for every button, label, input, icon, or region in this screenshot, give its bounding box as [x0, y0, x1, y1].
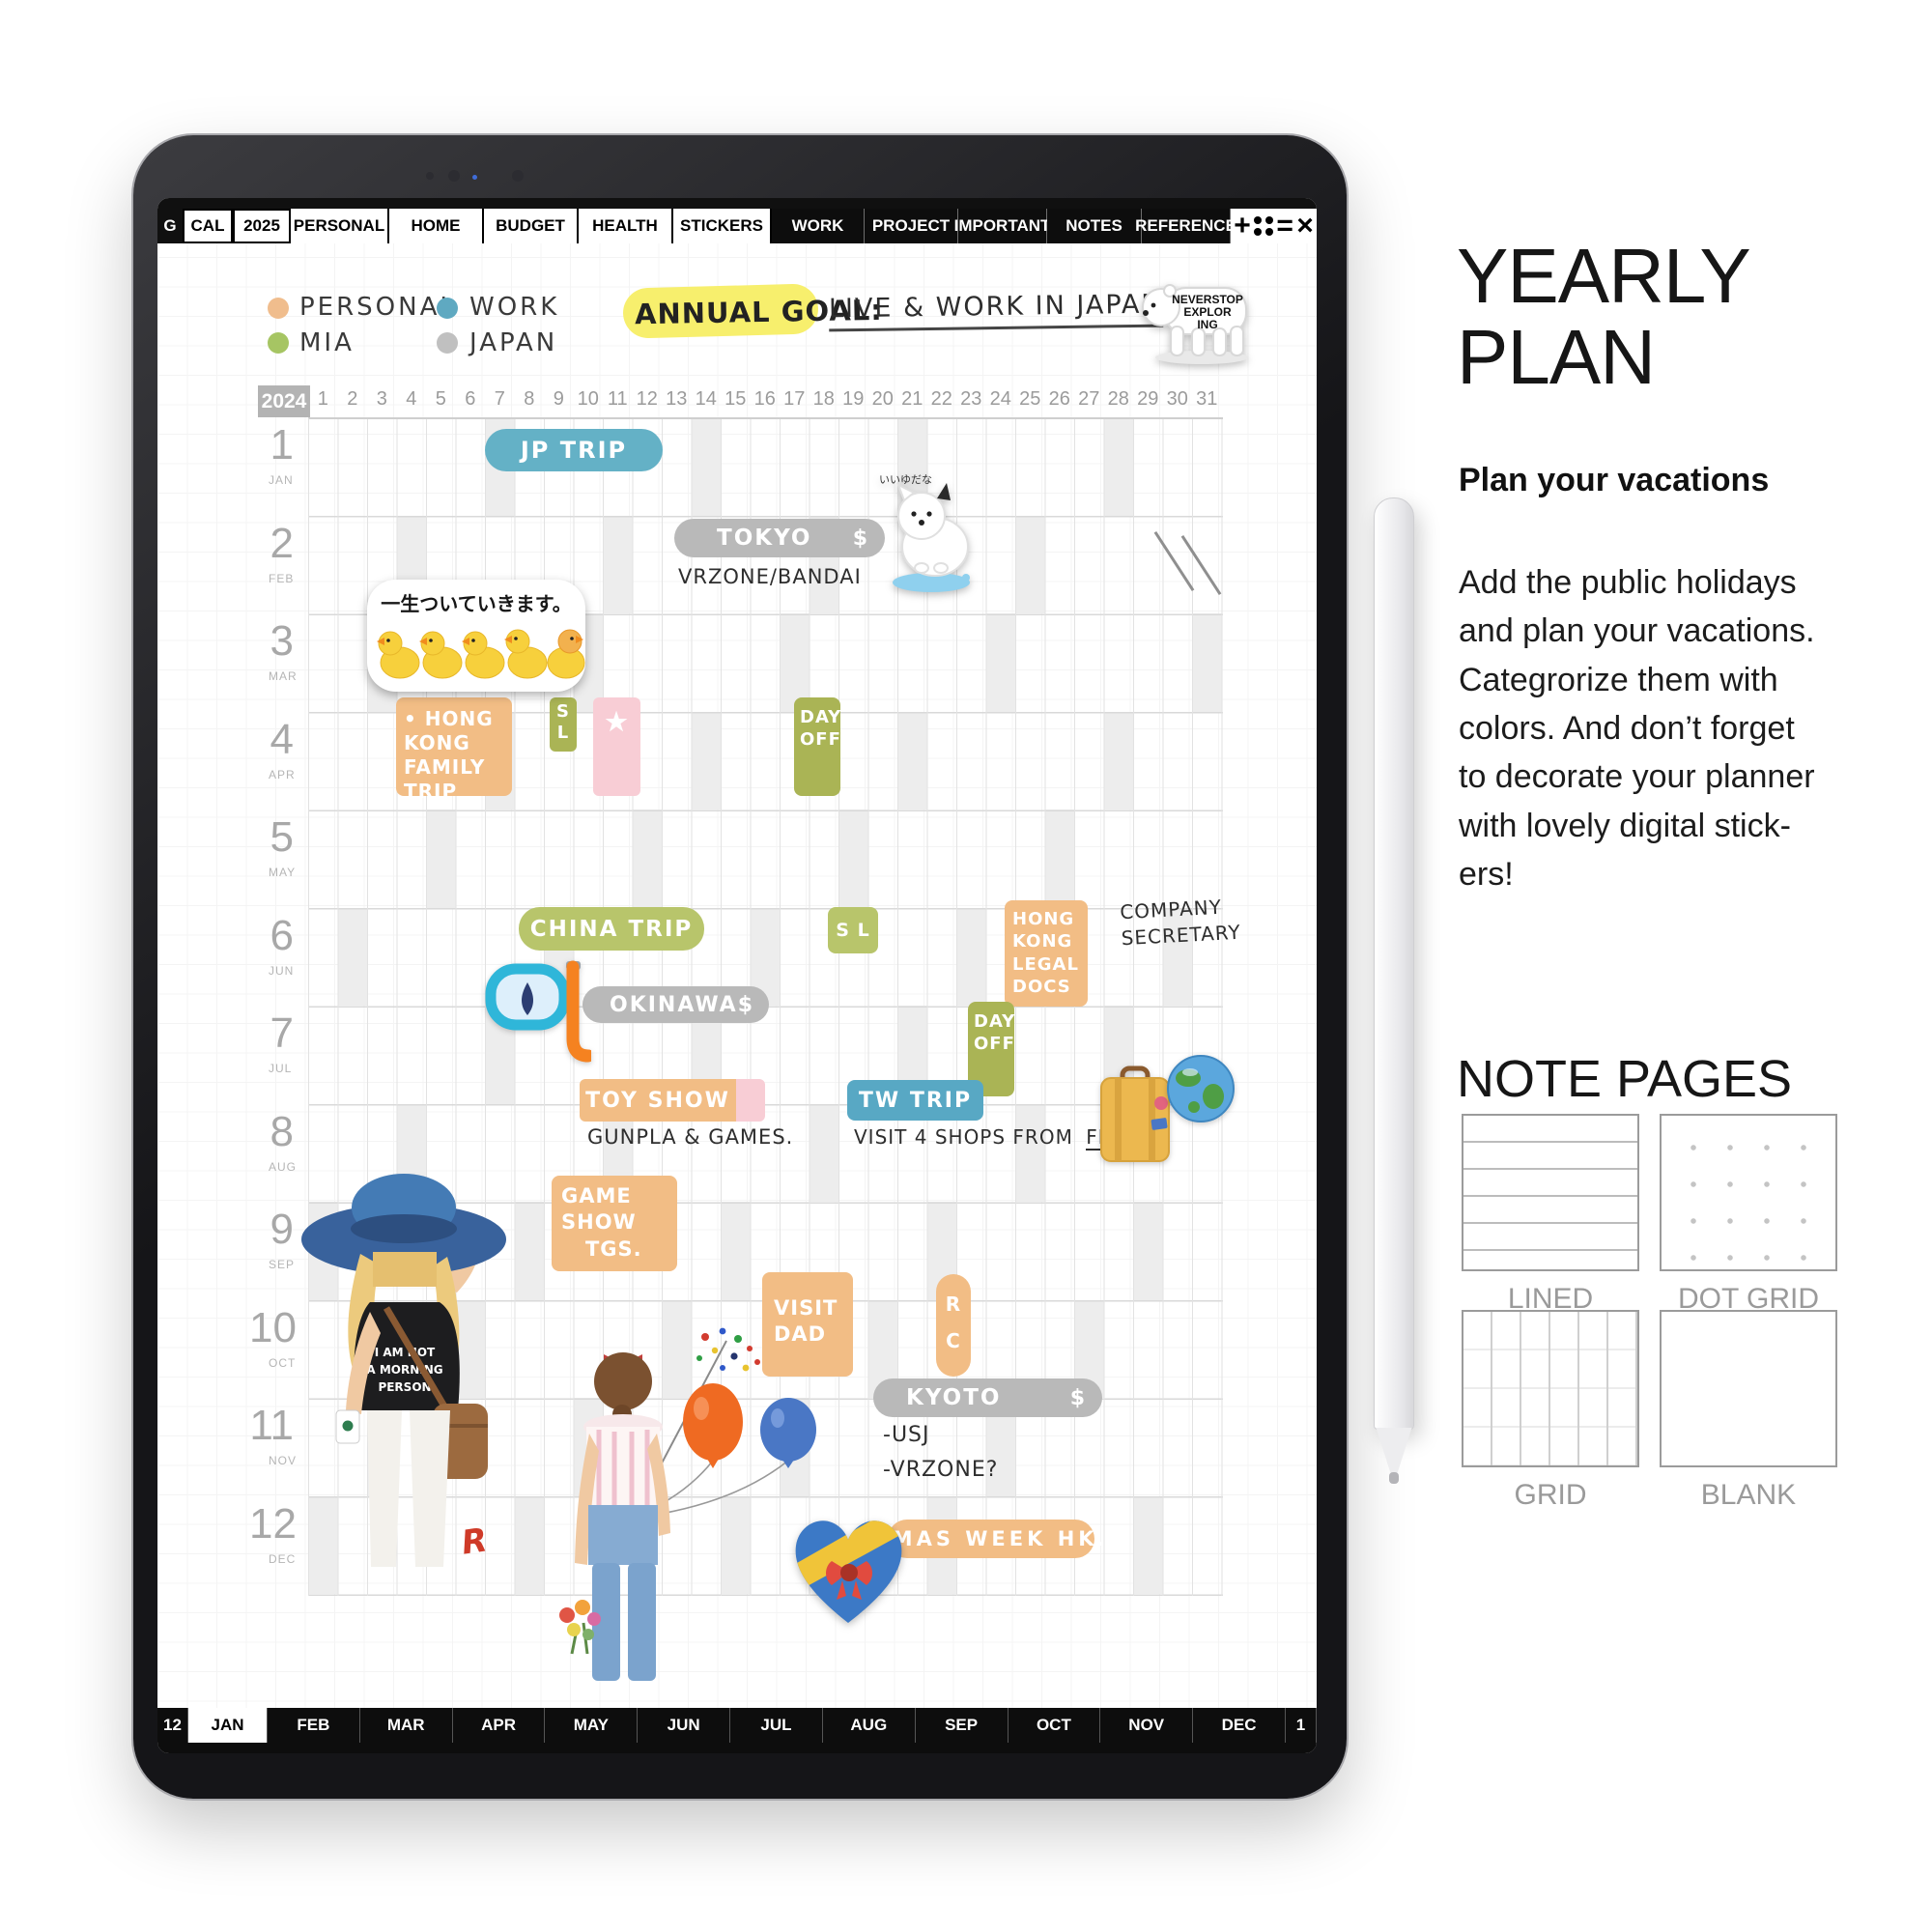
day-number: 9	[544, 388, 574, 411]
entry-tw-trip: TW TRIP	[847, 1080, 983, 1121]
close-icon[interactable]: ×	[1296, 212, 1314, 241]
note-label-grid: GRID	[1462, 1479, 1639, 1512]
svg-text:A MORNING: A MORNING	[366, 1363, 442, 1377]
top-tab-bar: G CAL2025PERSONALHOMEBUDGETHEALTHSTICKER…	[157, 198, 1317, 243]
tab-reference[interactable]: REFERENCE	[1142, 209, 1231, 243]
tab-month-sep[interactable]: SEP	[916, 1708, 1009, 1743]
tab-month-may[interactable]: MAY	[545, 1708, 638, 1743]
tab-project[interactable]: PROJECT	[865, 209, 958, 243]
entry-star-block: ★	[593, 697, 640, 796]
camera-dot-icon	[472, 175, 477, 180]
day-number: 8	[515, 388, 545, 411]
artist-signature: R	[459, 1520, 489, 1562]
day-number: 24	[986, 388, 1016, 411]
svg-text:NEVERSTOP: NEVERSTOP	[1172, 293, 1243, 306]
suitcase-sticker	[1095, 1065, 1175, 1169]
grid-icon[interactable]	[1254, 216, 1273, 236]
tab-cal[interactable]: CAL	[183, 209, 233, 243]
month-number: 8	[249, 1108, 294, 1156]
note-pages-title: NOTE PAGES	[1457, 1049, 1792, 1109]
day-number: 1	[308, 388, 338, 411]
tab-important[interactable]: IMPORTANT	[958, 209, 1047, 243]
month-number: 3	[249, 617, 294, 666]
tab-month-jul[interactable]: JUL	[730, 1708, 823, 1743]
day-number: 3	[367, 388, 397, 411]
svg-text:いいゆだな: いいゆだな	[879, 473, 932, 486]
panel-body: Add the public holidays and plan your va…	[1459, 558, 1815, 898]
dog-sticker: いいゆだな	[877, 469, 981, 595]
entry-hk-family-trip: • HONG KONG FAMILY TRIP	[396, 697, 512, 796]
star-icon: ★	[605, 707, 628, 737]
entry-toy-show-pink	[736, 1079, 765, 1122]
day-number: 28	[1104, 388, 1134, 411]
month-number: 4	[249, 716, 294, 764]
day-number: 30	[1163, 388, 1193, 411]
entry-kyoto: KYOTO $	[873, 1378, 1102, 1417]
tab-month-dec[interactable]: DEC	[1193, 1708, 1286, 1743]
day-number: 25	[1015, 388, 1045, 411]
day-number: 23	[956, 388, 986, 411]
day-number: 11	[603, 388, 633, 411]
day-number: 29	[1133, 388, 1163, 411]
tab-month-oct[interactable]: OCT	[1009, 1708, 1101, 1743]
page-title: YEARLY PLAN	[1457, 236, 1750, 398]
legend-dot-work	[437, 298, 458, 319]
month-number: 2	[249, 520, 294, 568]
svg-text:ING: ING	[1197, 318, 1217, 331]
note-gunpla-games: GUNPLA & GAMES.	[587, 1125, 793, 1149]
tab-g[interactable]: G	[157, 209, 183, 243]
month-number: 1	[249, 421, 294, 469]
toolbar-icons: + = ×	[1231, 209, 1317, 243]
tablet-screen: G CAL2025PERSONALHOMEBUDGETHEALTHSTICKER…	[157, 198, 1317, 1753]
tab-month-aug[interactable]: AUG	[823, 1708, 916, 1743]
entry-china-trip: CHINA TRIP	[519, 907, 704, 951]
cost-icon: $	[738, 993, 754, 1017]
entry-okinawa: OKINAWA $	[582, 986, 769, 1023]
tab-month-apr[interactable]: APR	[453, 1708, 546, 1743]
day-number: 17	[780, 388, 810, 411]
legend-label-japan: JAPAN	[469, 328, 557, 357]
day-number: 7	[485, 388, 515, 411]
tab-month-mar[interactable]: MAR	[360, 1708, 453, 1743]
month-abbr: MAY	[269, 866, 296, 879]
tab-stickers[interactable]: STICKERS	[673, 209, 772, 243]
day-number: 19	[838, 388, 868, 411]
day-number: 13	[662, 388, 692, 411]
tab-health[interactable]: HEALTH	[579, 209, 673, 243]
day-number: 20	[868, 388, 898, 411]
svg-text:EXPLOR: EXPLOR	[1183, 305, 1232, 319]
bottom-month-bar: 12 JAN FEBMARAPRMAYJUNJULAUGSEPOCTNOVDEC…	[157, 1708, 1317, 1753]
tab-2025[interactable]: 2025	[233, 209, 291, 243]
stylus-nib	[1389, 1472, 1399, 1484]
svg-text:I AM NOT: I AM NOT	[375, 1346, 436, 1359]
menu-icon[interactable]: =	[1276, 212, 1293, 241]
tab-notes[interactable]: NOTES	[1047, 209, 1142, 243]
day-number: 18	[810, 388, 839, 411]
entry-tokyo: TOKYO $	[674, 519, 885, 557]
month-abbr: JUN	[269, 964, 294, 978]
day-number: 14	[692, 388, 722, 411]
month-abbr: APR	[269, 768, 296, 781]
entry-sl-april: S L	[550, 697, 577, 752]
tab-month-prev[interactable]: 12	[157, 1708, 188, 1743]
note-company-secretary: COMPANY SECRETARY	[1120, 894, 1242, 952]
cost-icon: $	[853, 526, 869, 551]
cost-icon: $	[1070, 1386, 1087, 1410]
legend-label-work: WORK	[469, 293, 559, 322]
girl-blue-hat-sticker: I AM NOT A MORNING PERSON	[278, 1157, 539, 1611]
polar-bear-sticker: NEVERSTOP EXPLOR ING	[1140, 247, 1264, 369]
month-abbr: JUL	[269, 1062, 292, 1075]
day-number: 4	[397, 388, 427, 411]
panel-subtitle: Plan your vacations	[1459, 462, 1769, 499]
entry-xmas: XMAS WEEK HK.	[888, 1520, 1094, 1558]
legend-label-personal: PERSONAL	[299, 293, 457, 322]
girl-braid-sticker	[551, 1335, 696, 1697]
month-number: 5	[249, 813, 294, 862]
entry-jp-trip: JP TRIP	[485, 429, 663, 471]
svg-text:PERSON: PERSON	[378, 1380, 431, 1394]
day-number: 26	[1045, 388, 1075, 411]
month-number: 6	[249, 912, 294, 960]
month-abbr: JAN	[269, 473, 294, 487]
day-number: 15	[721, 388, 751, 411]
day-number: 6	[456, 388, 486, 411]
ducks-sticker: 一生ついていきます。	[365, 578, 587, 696]
note-thumb-dotgrid	[1660, 1114, 1837, 1271]
camera-icon	[426, 172, 434, 180]
note-thumb-blank	[1660, 1310, 1837, 1467]
entry-hk-legal-docs: HONG KONG LEGAL DOCS	[1005, 900, 1088, 1007]
tab-home[interactable]: HOME	[389, 209, 484, 243]
day-number: 12	[633, 388, 663, 411]
heart-gift-sticker	[788, 1507, 909, 1634]
entry-rc: R C	[936, 1274, 971, 1377]
tab-month-nov[interactable]: NOV	[1100, 1708, 1193, 1743]
legend-label-mia: MIA	[299, 328, 355, 357]
month-abbr: FEB	[269, 572, 294, 585]
tab-month-jan[interactable]: JAN	[188, 1708, 268, 1743]
note-thumb-lined	[1462, 1114, 1639, 1271]
globe-sticker	[1165, 1053, 1236, 1124]
day-number: 2	[338, 388, 368, 411]
tab-budget[interactable]: BUDGET	[484, 209, 579, 243]
day-number: 21	[897, 388, 927, 411]
camera-icon	[448, 170, 460, 182]
tab-month-feb[interactable]: FEB	[268, 1708, 360, 1743]
snorkel-mask-sticker	[483, 959, 591, 1070]
day-number: 5	[426, 388, 456, 411]
month-abbr: MAR	[269, 669, 298, 683]
note-tokyo: VRZONE/BANDAI	[678, 565, 862, 588]
note-tw-trip: VISIT 4 SHOPS FROM FEB	[854, 1125, 1125, 1149]
entry-day-off-april: DAY OFF	[794, 697, 840, 796]
stylus-pencil	[1374, 497, 1414, 1430]
legend-dot-personal	[268, 298, 289, 319]
note-label-blank: BLANK	[1660, 1479, 1837, 1512]
tab-month-jun[interactable]: JUN	[638, 1708, 730, 1743]
day-number: 31	[1192, 388, 1222, 411]
legend-dot-mia	[268, 332, 289, 354]
plus-icon[interactable]: +	[1234, 212, 1251, 241]
camera-icon	[512, 170, 524, 182]
day-number: 27	[1074, 388, 1104, 411]
entry-game-show: GAME SHOW TGS.	[552, 1176, 677, 1271]
entry-toy-show: TOY SHOW	[580, 1079, 736, 1122]
entry-sl-june: S L	[828, 907, 878, 953]
tab-work[interactable]: WORK	[772, 209, 865, 243]
svg-text:一生ついていきます。: 一生ついていきます。	[381, 592, 571, 615]
day-number: 22	[927, 388, 957, 411]
tablet-frame: G CAL2025PERSONALHOMEBUDGETHEALTHSTICKER…	[133, 135, 1347, 1799]
year-label: 2024	[258, 385, 310, 417]
stage: G CAL2025PERSONALHOMEBUDGETHEALTHSTICKER…	[0, 0, 1932, 1932]
legend-dot-japan	[437, 332, 458, 354]
note-thumb-grid	[1462, 1310, 1639, 1467]
month-number: 7	[249, 1009, 294, 1058]
day-number: 10	[574, 388, 604, 411]
tab-personal[interactable]: PERSONAL	[291, 209, 389, 243]
tab-month-next[interactable]: 1	[1286, 1708, 1317, 1743]
note-kyoto: -USJ -VRZONE?	[883, 1418, 998, 1489]
day-number: 16	[751, 388, 781, 411]
goal-value: LIVE & WORK IN JAPAN	[829, 290, 1163, 332]
